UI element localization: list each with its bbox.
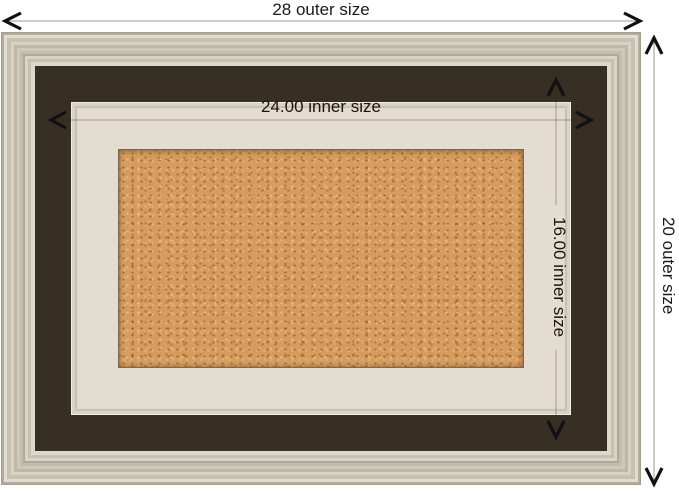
inner-height-label: 16.00 inner size [546, 100, 569, 455]
inner-width-label: 24.00 inner size [50, 97, 592, 117]
outer-width-label: 28 outer size [2, 0, 640, 20]
frame-accent-line [35, 66, 607, 451]
cork-board [119, 150, 523, 367]
product-dimension-diagram: 28 outer size 20 outer size 24.00 inner … [0, 0, 679, 491]
frame-inner-lip [71, 102, 571, 415]
outer-height-label: 20 outer size [655, 40, 678, 491]
